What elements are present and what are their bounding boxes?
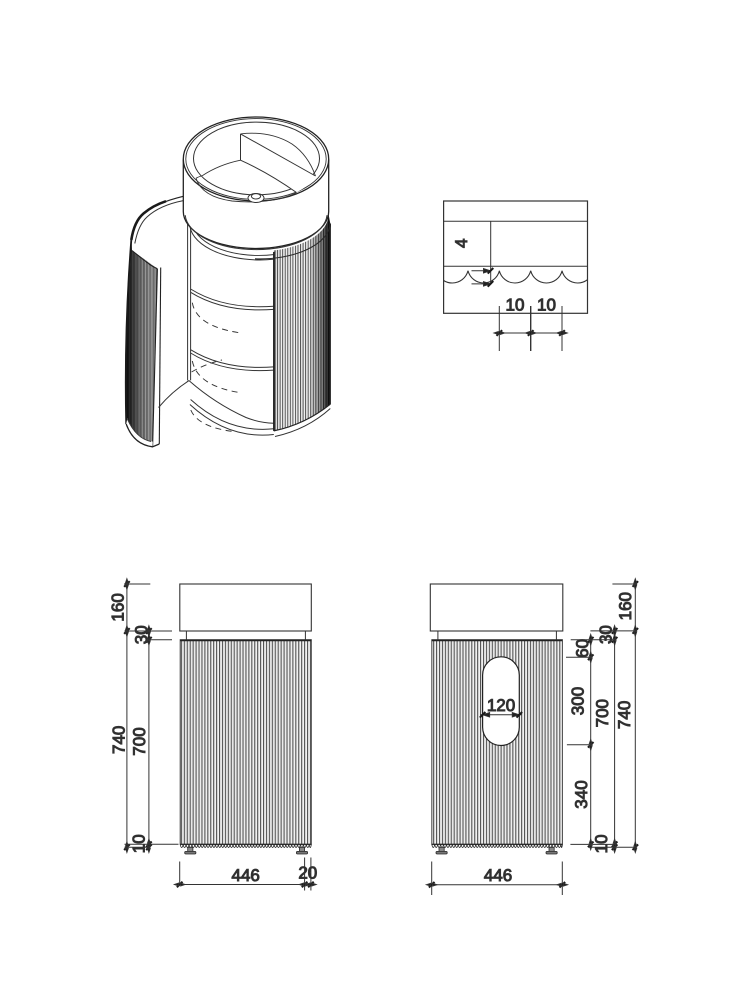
svg-text:160: 160 [616, 592, 635, 620]
svg-text:340: 340 [572, 780, 591, 808]
svg-text:700: 700 [130, 727, 149, 755]
svg-text:4: 4 [452, 239, 471, 248]
svg-text:20: 20 [298, 864, 317, 883]
svg-text:740: 740 [615, 701, 634, 729]
svg-text:10: 10 [537, 296, 556, 315]
svg-text:120: 120 [487, 696, 515, 715]
svg-text:60: 60 [573, 639, 592, 658]
svg-text:30: 30 [596, 625, 615, 644]
svg-text:740: 740 [110, 726, 129, 754]
svg-text:10: 10 [592, 834, 611, 853]
svg-text:160: 160 [108, 593, 127, 621]
svg-text:446: 446 [484, 866, 512, 885]
svg-text:446: 446 [232, 866, 260, 885]
svg-text:10: 10 [506, 296, 525, 315]
svg-text:700: 700 [593, 699, 612, 727]
svg-text:30: 30 [132, 625, 151, 644]
svg-text:300: 300 [568, 687, 587, 715]
svg-text:10: 10 [130, 834, 149, 853]
